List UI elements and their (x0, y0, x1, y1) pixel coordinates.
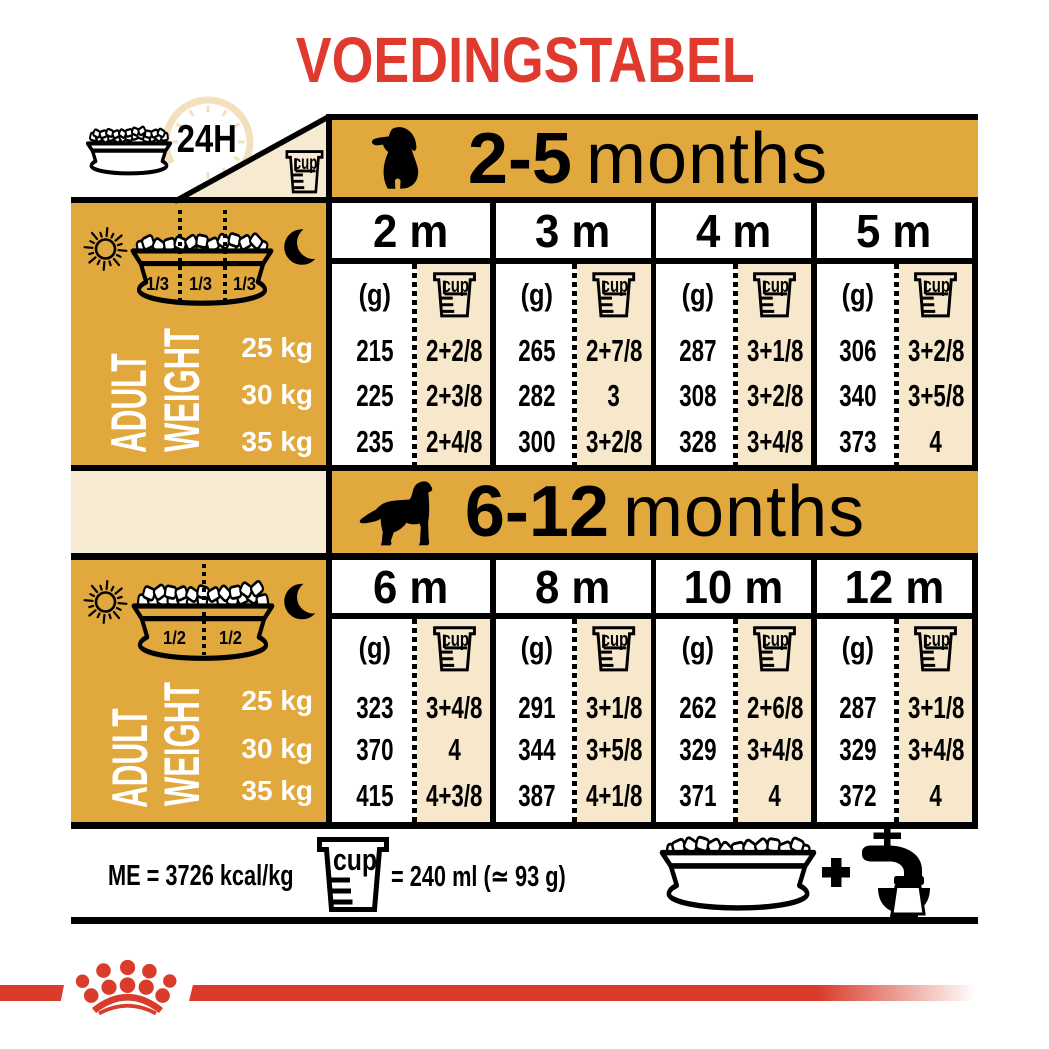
svg-text:cup: cup (762, 274, 789, 297)
svg-text:cup: cup (442, 628, 469, 651)
svg-text:cup: cup (294, 152, 318, 174)
svg-text:cup: cup (923, 274, 950, 297)
svg-text:cup: cup (602, 628, 629, 651)
svg-text:cup: cup (762, 628, 789, 651)
svg-text:cup: cup (602, 274, 629, 297)
svg-text:cup: cup (923, 628, 950, 651)
svg-text:cup: cup (442, 274, 469, 297)
